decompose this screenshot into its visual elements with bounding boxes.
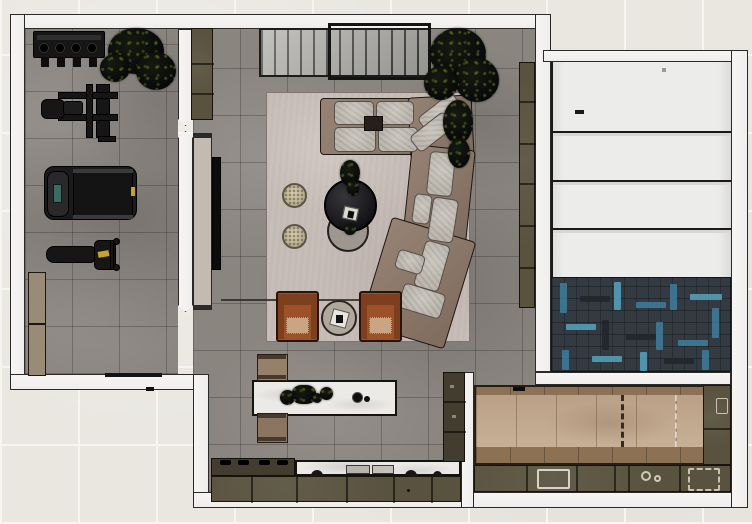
- garage-floor-speck: [662, 68, 666, 72]
- wall-mid-right: [535, 372, 731, 385]
- wall-kitchen-left: [193, 374, 209, 508]
- table-decor: [344, 224, 356, 235]
- dumbbell-rack[interactable]: [33, 31, 105, 58]
- garage-floor-mark: [575, 110, 584, 114]
- wall-divider-lower: [178, 131, 193, 312]
- lane-dashed-line: [621, 395, 624, 447]
- garage-panel-divider: [553, 228, 733, 233]
- treadmill[interactable]: [44, 166, 137, 220]
- table-card: [342, 206, 359, 222]
- gym-storage-cabinet[interactable]: [28, 272, 46, 376]
- island-bench[interactable]: [257, 354, 288, 381]
- leather-armchair[interactable]: [276, 291, 319, 342]
- wall-left-outer: [10, 14, 25, 390]
- bar-burners: [654, 475, 661, 482]
- round-pouf[interactable]: [282, 183, 307, 208]
- games-bar-counter-right: [703, 385, 731, 465]
- grill-tray: [688, 468, 720, 491]
- side-table[interactable]: [321, 300, 357, 336]
- wood-planks: [476, 395, 718, 447]
- sliding-door-panel[interactable]: [193, 133, 212, 310]
- kitchen-sink: [346, 465, 370, 474]
- garage-floor-panels: [551, 62, 731, 277]
- door-stop-mark: [146, 387, 154, 391]
- wood-border-strip: [476, 447, 718, 463]
- games-bar-counter-bottom: [474, 465, 731, 492]
- right-wall-shelf[interactable]: [519, 62, 535, 308]
- tv-panel[interactable]: [212, 157, 221, 270]
- wood-floor-mark: [513, 387, 525, 391]
- floorplan-canvas[interactable]: [0, 0, 752, 524]
- table-plant: [347, 180, 359, 196]
- garage-herringbone-mat: [551, 277, 731, 372]
- garage-panel-divider: [553, 131, 733, 136]
- round-pouf[interactable]: [282, 224, 307, 249]
- island-bench[interactable]: [257, 413, 288, 443]
- leather-armchair[interactable]: [359, 291, 402, 342]
- wall-living-right: [535, 14, 551, 372]
- divider-wall-cabinet[interactable]: [191, 28, 213, 120]
- sink-counter[interactable]: [295, 460, 461, 476]
- games-room-floor: [474, 385, 720, 465]
- wall-right-outer: [731, 50, 748, 508]
- garage-panel-divider: [553, 180, 733, 185]
- bar-sink: [537, 469, 570, 489]
- cooktop-counter[interactable]: [211, 458, 295, 476]
- counter-mark: [716, 398, 728, 414]
- sofa-tray: [364, 116, 383, 131]
- wall-top-main: [10, 14, 551, 29]
- base-cabinets[interactable]: [211, 476, 461, 502]
- wall-garage-top: [543, 50, 748, 62]
- gym-window-mark: [105, 373, 162, 377]
- kitchen-sink: [372, 465, 394, 474]
- bar-burners: [641, 471, 651, 481]
- lane-dashed-line-light: [675, 395, 677, 447]
- fireplace-frame[interactable]: [328, 23, 431, 80]
- tall-pantry-cabinet[interactable]: [443, 372, 465, 462]
